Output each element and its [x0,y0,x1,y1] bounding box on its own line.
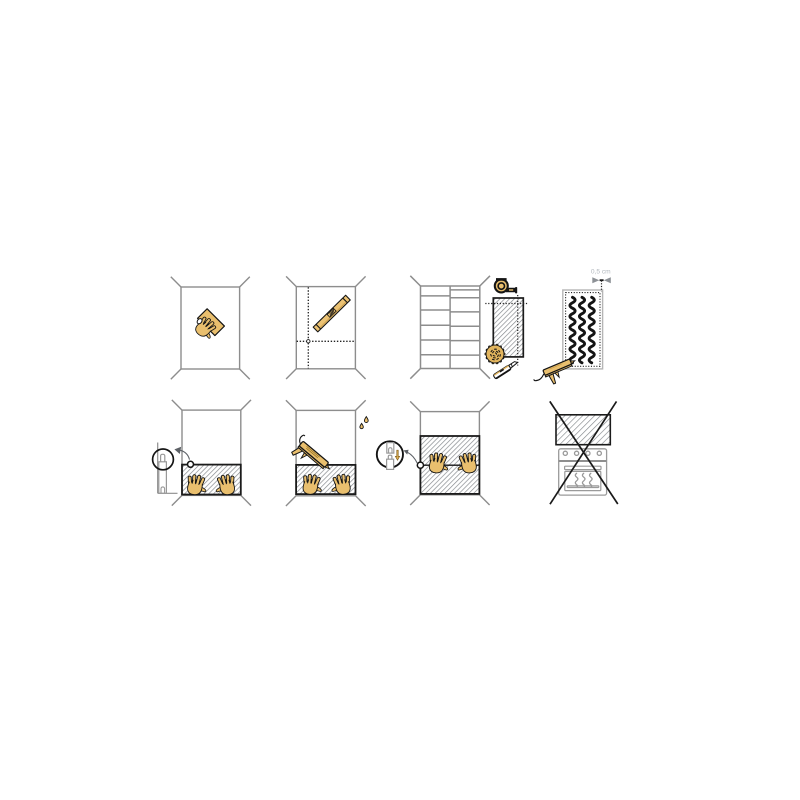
svg-text:0,5 cm: 0,5 cm [591,269,611,276]
